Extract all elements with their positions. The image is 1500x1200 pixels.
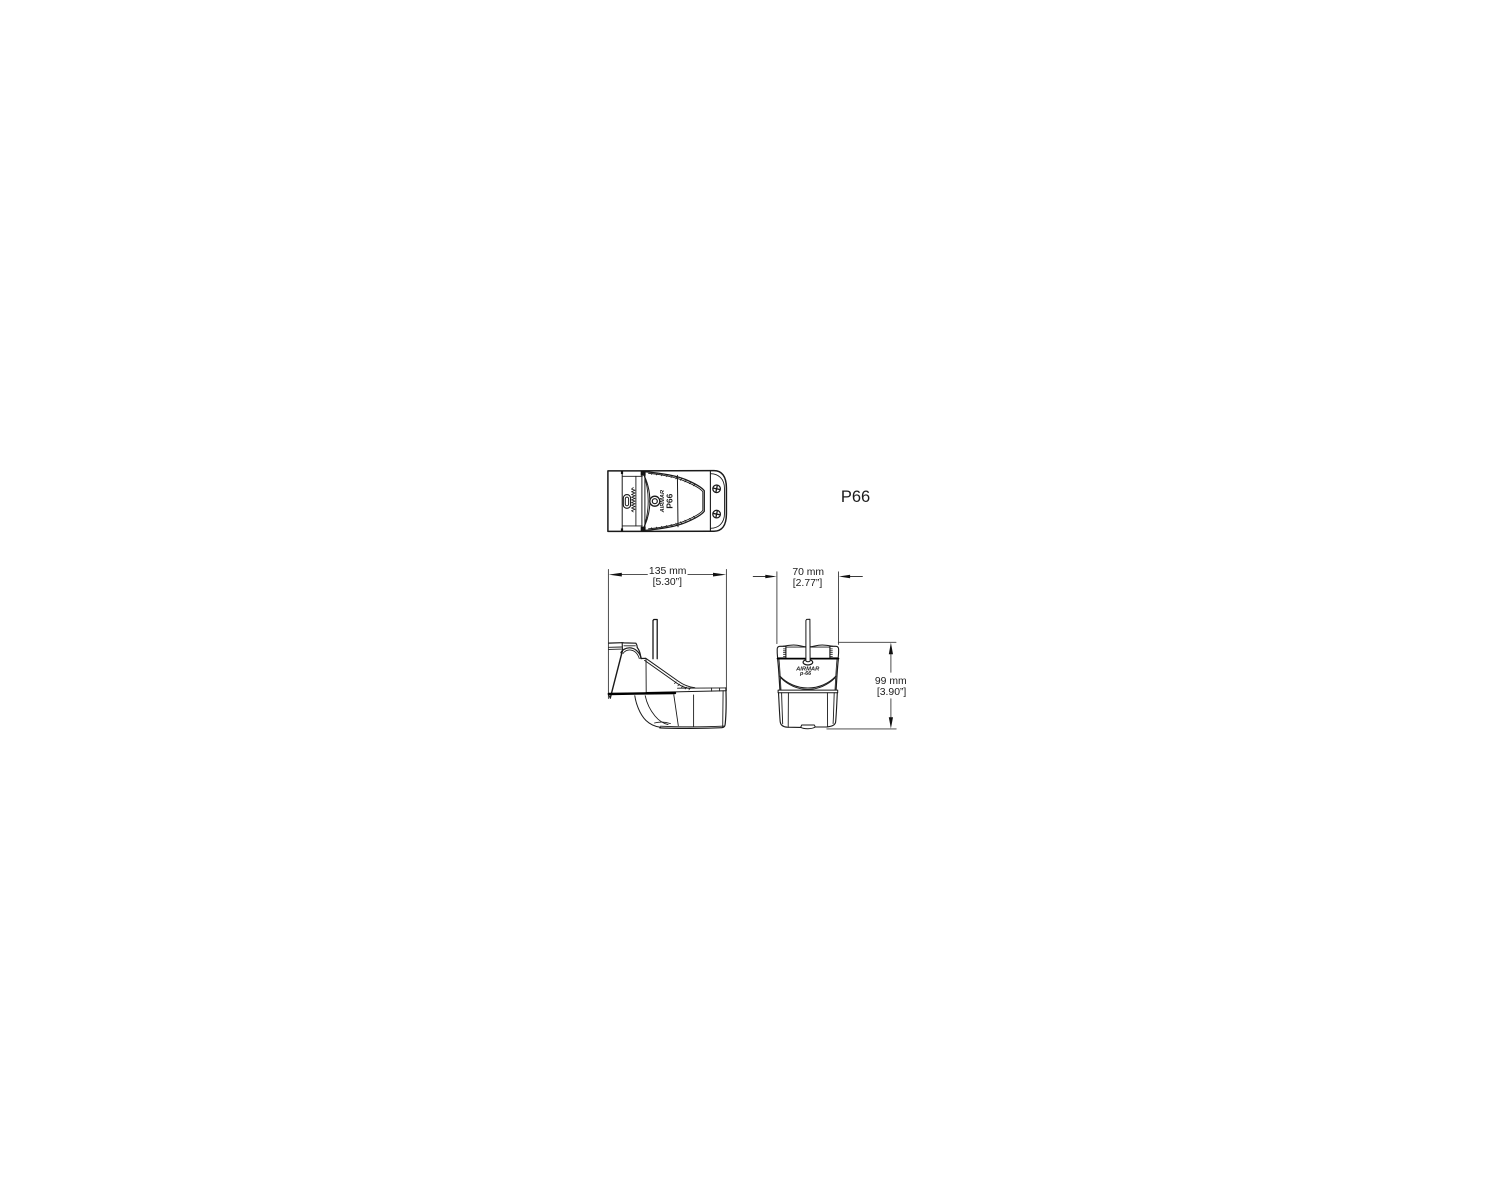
svg-text:p-66: p-66 (799, 671, 812, 677)
svg-text:[5.30”]: [5.30”] (653, 577, 683, 588)
svg-text:P66: P66 (665, 493, 675, 508)
svg-text:[2.77”]: [2.77”] (793, 578, 823, 589)
svg-text:[3.90”]: [3.90”] (877, 687, 907, 698)
svg-text:135 mm: 135 mm (649, 566, 687, 577)
svg-text:P66: P66 (841, 488, 870, 506)
svg-text:99 mm: 99 mm (875, 676, 907, 687)
svg-text:70 mm: 70 mm (792, 567, 824, 578)
